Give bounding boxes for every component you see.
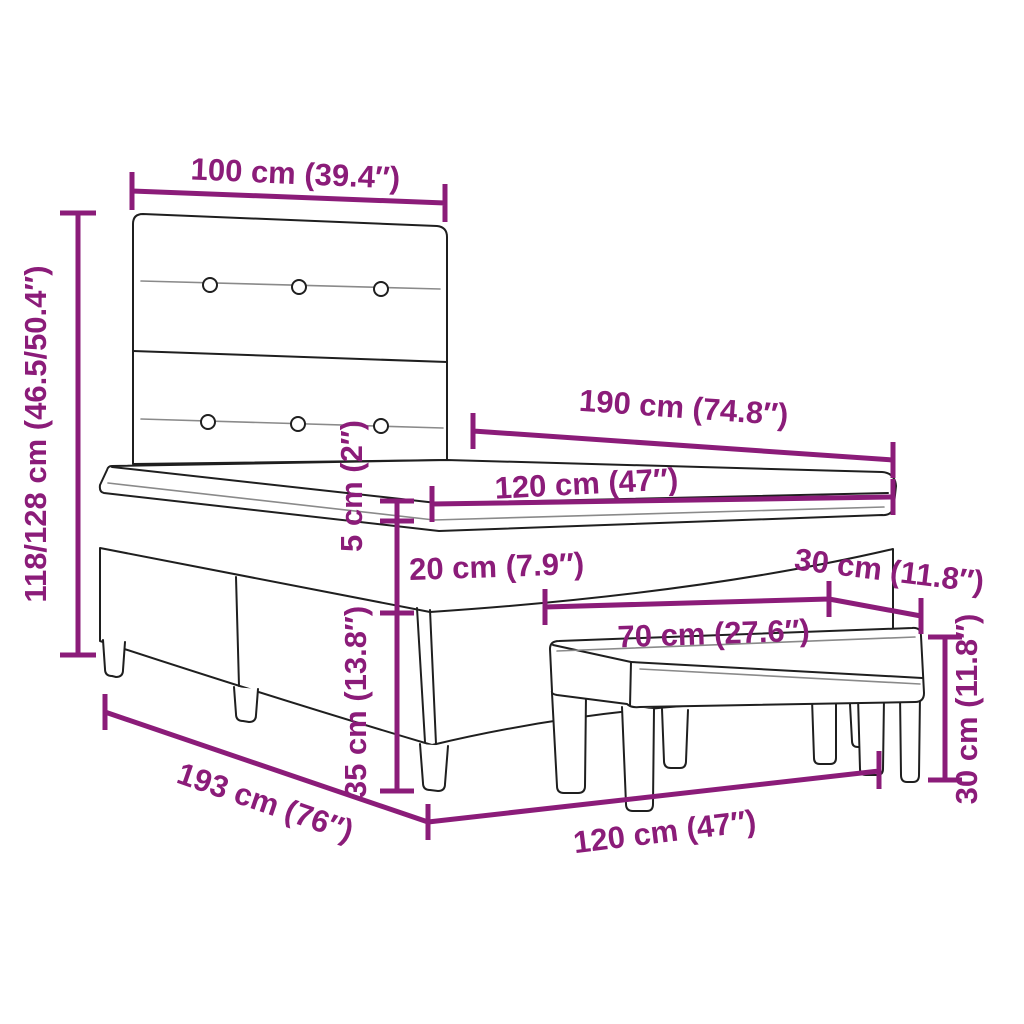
bed-leg bbox=[234, 687, 258, 722]
diagram-canvas: 100 cm (39.4″) 118/128 cm (46.5/50.4″) 1… bbox=[0, 0, 1024, 1024]
tuft-button bbox=[203, 278, 217, 292]
dim-mattress-length-label: 190 cm (74.8″) bbox=[578, 383, 790, 433]
dim-topper-thickness-label: 5 cm (2″) bbox=[334, 420, 369, 552]
bench-leg bbox=[552, 693, 586, 793]
dim-bench-height-label: 30 cm (11.8″) bbox=[949, 614, 984, 805]
bench-drawing bbox=[550, 628, 924, 811]
dimension-diagram: 100 cm (39.4″) 118/128 cm (46.5/50.4″) 1… bbox=[0, 0, 1024, 1024]
dim-mattress-thickness: 20 cm (7.9″) bbox=[380, 521, 585, 613]
dim-line bbox=[60, 213, 96, 655]
dim-headboard-width: 100 cm (39.4″) bbox=[132, 151, 445, 222]
headboard bbox=[133, 214, 447, 464]
dim-headboard-width-label: 100 cm (39.4″) bbox=[190, 151, 401, 195]
tuft-button bbox=[374, 419, 388, 433]
dim-total-height-label: 118/128 cm (46.5/50.4″) bbox=[18, 265, 53, 602]
dim-frame-width-label: 120 cm (47″) bbox=[571, 803, 758, 860]
dim-total-height: 118/128 cm (46.5/50.4″) bbox=[18, 213, 96, 655]
tuft-button bbox=[374, 282, 388, 296]
bench-leg bbox=[662, 709, 688, 768]
bench-leg bbox=[900, 694, 920, 782]
dim-mattress-thickness-label: 20 cm (7.9″) bbox=[409, 546, 585, 587]
tuft-button bbox=[201, 415, 215, 429]
dim-bench-length-label: 70 cm (27.6″) bbox=[617, 613, 810, 655]
dim-bench-height: 30 cm (11.8″) bbox=[928, 614, 984, 805]
dim-base-height-label: 35 cm (13.8″) bbox=[338, 606, 373, 798]
bench-cushion-corner-edge bbox=[630, 662, 631, 706]
dim-frame-length-label: 193 cm (76″) bbox=[173, 756, 358, 849]
bench-leg bbox=[812, 699, 836, 764]
bed-leg bbox=[103, 640, 125, 677]
bed-leg bbox=[420, 744, 448, 791]
tuft-button bbox=[292, 280, 306, 294]
tuft-button bbox=[291, 417, 305, 431]
